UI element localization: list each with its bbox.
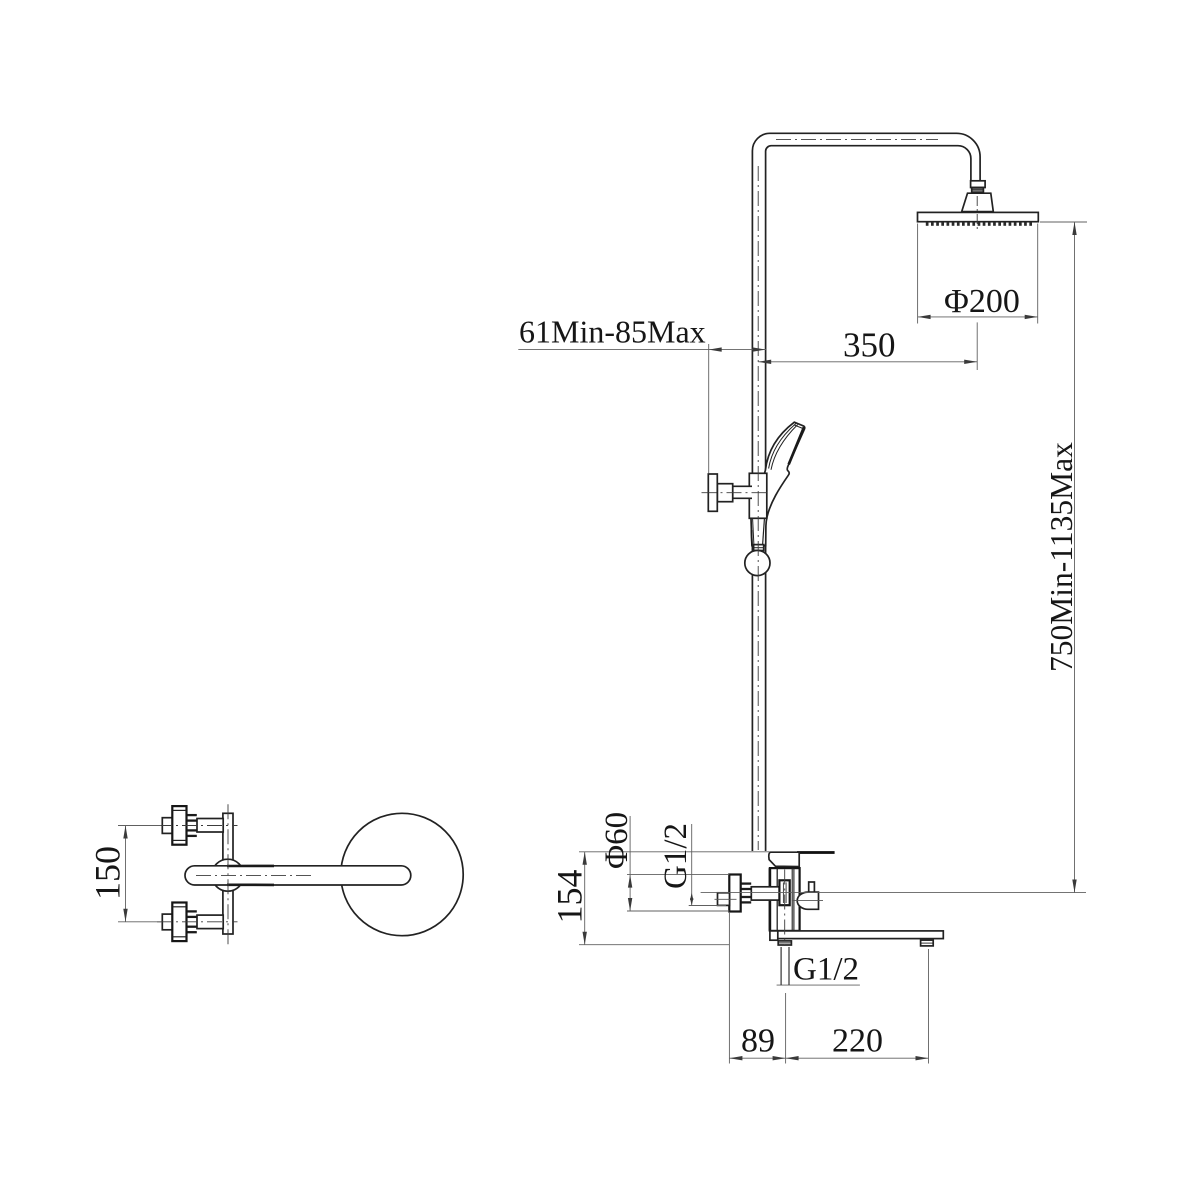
svg-text:G1/2: G1/2 — [658, 823, 694, 889]
svg-text:89: 89 — [741, 1023, 775, 1060]
svg-text:G1/2: G1/2 — [793, 952, 859, 988]
svg-text:220: 220 — [832, 1023, 883, 1060]
svg-text:61Min-85Max: 61Min-85Max — [519, 313, 706, 349]
svg-text:Φ60: Φ60 — [599, 812, 635, 869]
svg-text:Φ200: Φ200 — [944, 283, 1020, 320]
svg-text:350: 350 — [843, 326, 896, 365]
svg-text:150: 150 — [88, 846, 128, 900]
svg-text:750Min-1135Max: 750Min-1135Max — [1044, 442, 1079, 672]
svg-text:154: 154 — [550, 870, 590, 924]
